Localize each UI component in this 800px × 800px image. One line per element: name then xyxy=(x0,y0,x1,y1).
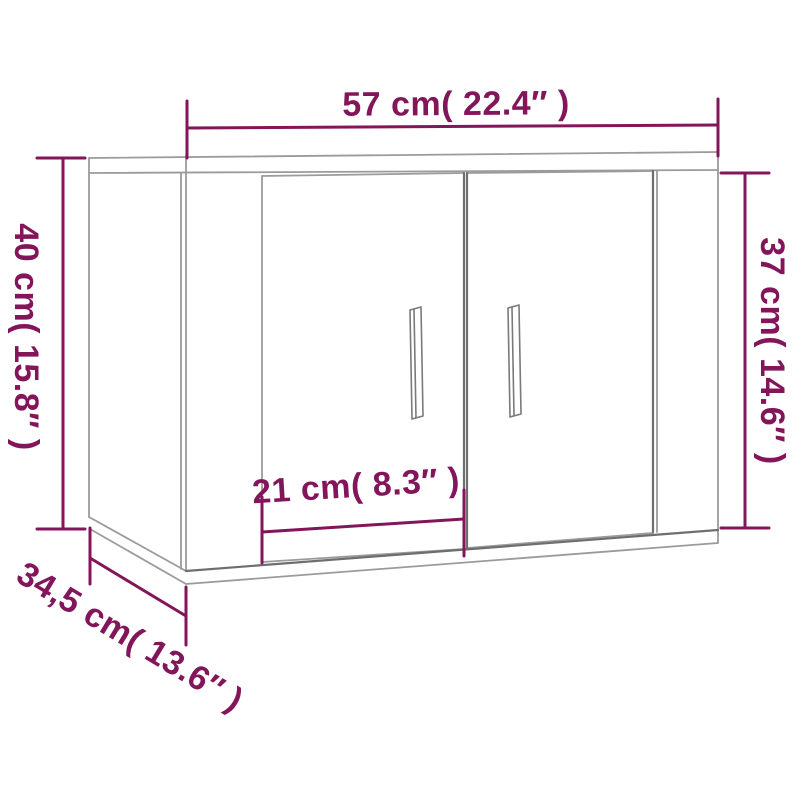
cabinet-front-bottom-upper-edge xyxy=(186,530,718,571)
dim-door-width-measure-line xyxy=(262,519,464,532)
cabinet-side-bottom-upper-edge xyxy=(89,517,186,571)
dim-height-right-label: 37 cm( 14.6″ ) xyxy=(755,237,789,464)
left-door-handle-highlight xyxy=(414,309,416,418)
left-door-top-edge xyxy=(262,173,464,176)
cabinet-side-bottom-lower-edge xyxy=(90,529,186,584)
dim-width-measure-line xyxy=(187,125,718,128)
cabinet-top-edge xyxy=(89,152,718,158)
right-door-handle-highlight xyxy=(512,307,514,416)
dimension-lines xyxy=(37,99,769,645)
dimension-diagram: 57 cm( 22.4″ ) 40 cm( 15.8″ ) 37 cm( 14.… xyxy=(0,0,800,800)
dim-width-label: 57 cm( 22.4″ ) xyxy=(342,86,570,122)
cabinet-body xyxy=(89,152,718,584)
dim-height-left-label: 40 cm( 15.8″ ) xyxy=(9,223,43,450)
door-handles xyxy=(410,305,521,419)
cabinet-dark-edges xyxy=(186,171,718,571)
right-door-bottom-edge xyxy=(467,533,653,548)
